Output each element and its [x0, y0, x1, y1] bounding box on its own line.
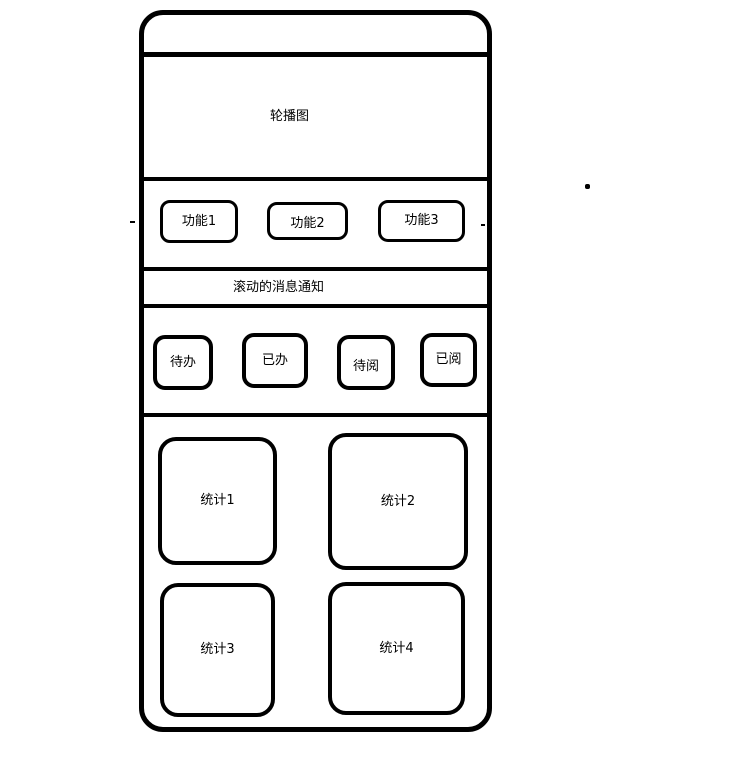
tab-done[interactable]: 已办 [242, 333, 308, 388]
function-button-1-label: 功能1 [182, 214, 216, 230]
stat-card-1[interactable]: 统计1 [158, 437, 277, 565]
tab-to-read[interactable]: 待阅 [337, 335, 395, 390]
function-button-1[interactable]: 功能1 [160, 200, 238, 243]
left-tick-mark [130, 221, 135, 223]
stat-card-4[interactable]: 统计4 [328, 582, 465, 715]
notice-bar[interactable]: 滚动的消息通知 [144, 271, 487, 308]
tab-to-read-label: 待阅 [353, 359, 379, 375]
wireframe-canvas: 轮播图 功能1 功能2 功能3 滚动的消息通知 待办 已办 待阅 [0, 0, 739, 768]
quick-actions-row: 功能1 功能2 功能3 [144, 181, 487, 271]
tabs-row: 待办 已办 待阅 已阅 [144, 308, 487, 417]
stats-grid: 统计1 统计2 统计3 统计4 [144, 417, 487, 727]
function-button-3[interactable]: 功能3 [378, 200, 465, 242]
stat-card-2-label: 统计2 [381, 494, 415, 510]
carousel-label: 轮播图 [270, 109, 309, 125]
stat-card-3-label: 统计3 [200, 642, 234, 658]
tab-todo-label: 待办 [170, 355, 196, 371]
right-tick-mark [481, 224, 485, 226]
tab-todo[interactable]: 待办 [153, 335, 213, 390]
function-button-2-label: 功能2 [290, 216, 324, 232]
function-button-2[interactable]: 功能2 [267, 202, 348, 240]
stat-card-2[interactable]: 统计2 [328, 433, 468, 570]
tab-read[interactable]: 已阅 [420, 333, 477, 387]
function-button-3-label: 功能3 [404, 213, 438, 229]
notice-bar-label: 滚动的消息通知 [233, 280, 324, 296]
tab-done-label: 已办 [262, 353, 288, 369]
carousel-section[interactable]: 轮播图 [144, 57, 487, 181]
stat-card-3[interactable]: 统计3 [160, 583, 275, 717]
stat-card-4-label: 统计4 [379, 641, 413, 657]
phone-frame: 轮播图 功能1 功能2 功能3 滚动的消息通知 待办 已办 待阅 [139, 10, 492, 732]
stray-dot [585, 184, 590, 189]
status-bar [144, 15, 487, 57]
tab-read-label: 已阅 [435, 352, 461, 368]
stat-card-1-label: 统计1 [200, 493, 234, 509]
